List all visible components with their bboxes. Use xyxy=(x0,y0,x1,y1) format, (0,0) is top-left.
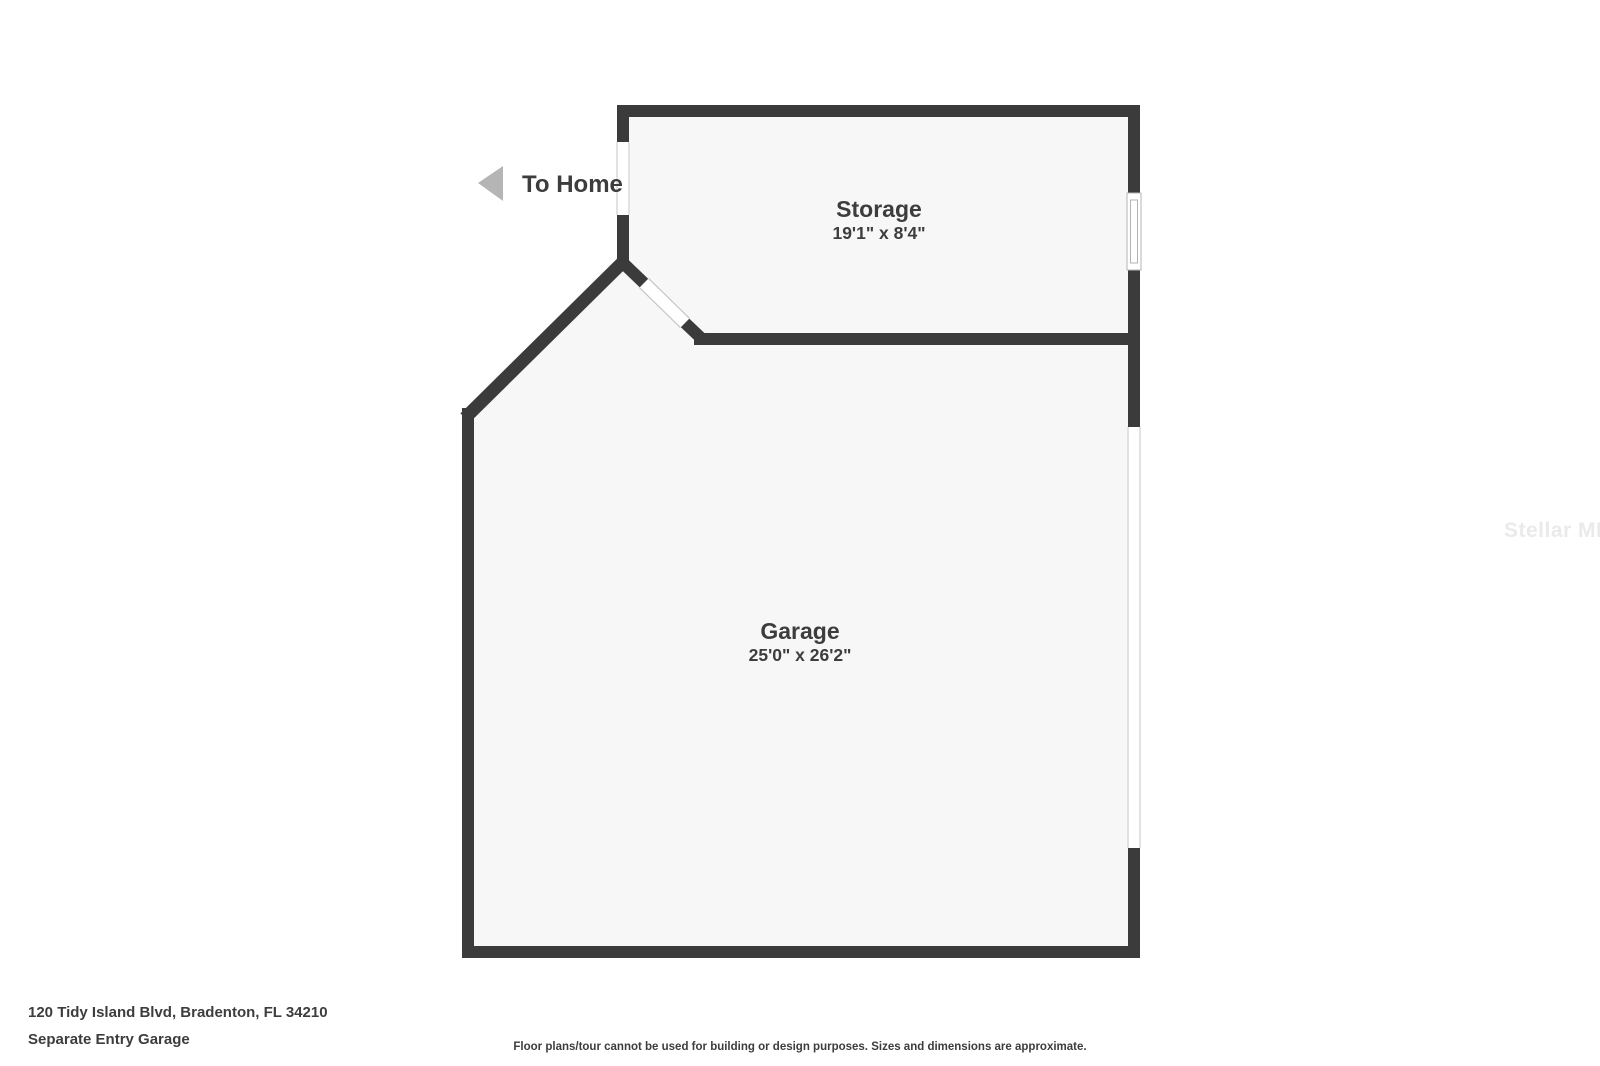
disclaimer-text: Floor plans/tour cannot be used for buil… xyxy=(0,1041,1600,1053)
stellar-mls-watermark: Stellar MLS xyxy=(1504,519,1600,543)
garage-room-dimensions: 25'0" x 26'2" xyxy=(749,645,852,665)
garage-room-label: Garage xyxy=(760,618,839,644)
floor-plan-page: To Home Storage 19'1" x 8'4" Garage 25'0… xyxy=(0,0,1600,1066)
storage-room-label: Storage xyxy=(836,196,922,222)
storage-room-dimensions: 19'1" x 8'4" xyxy=(832,223,925,243)
garage-room xyxy=(462,255,1140,958)
floor-plan: To Home Storage 19'1" x 8'4" Garage 25'0… xyxy=(0,0,1600,1066)
to-home-arrow-icon xyxy=(478,166,503,201)
room-fills xyxy=(462,105,1140,958)
to-home-label: To Home xyxy=(522,171,623,198)
property-address: 120 Tidy Island Blvd, Bradenton, FL 3421… xyxy=(28,1004,328,1021)
storage-window-icon xyxy=(1127,193,1141,270)
garage-door-opening xyxy=(1127,427,1141,848)
